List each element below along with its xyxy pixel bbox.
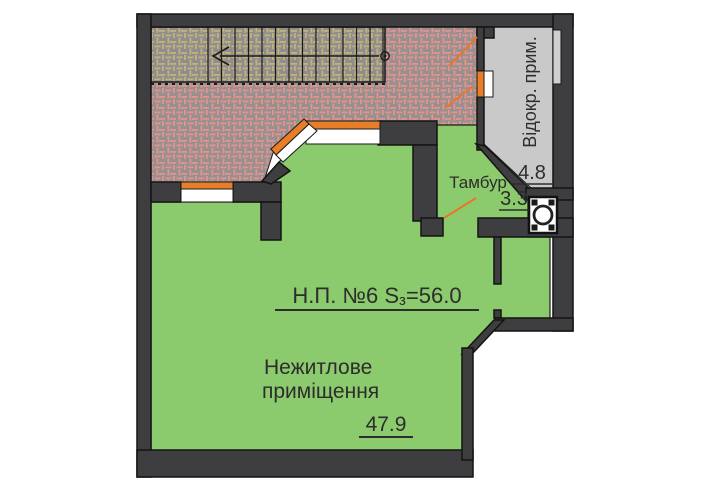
wall-segment bbox=[137, 450, 473, 477]
main-room-area: 47.9 bbox=[366, 413, 407, 436]
wall-segment bbox=[421, 218, 443, 236]
wall-segment bbox=[494, 237, 501, 284]
wall-segment bbox=[261, 202, 281, 240]
wall-segment bbox=[477, 97, 484, 150]
stairs-floor bbox=[151, 27, 385, 82]
wall-niche bbox=[553, 30, 561, 84]
wall-segment bbox=[462, 348, 473, 460]
wall-segment bbox=[495, 318, 573, 331]
wall-segment bbox=[378, 121, 437, 145]
window-bay-horizontal bbox=[306, 121, 380, 144]
separate-room-label: Відокр. прим. bbox=[520, 36, 540, 148]
separate-room-area: 4.8 bbox=[518, 162, 546, 184]
floor-plan-page: Відокр. прим. 4.8 Тамбур 3.3 Н.П. №6 Sз=… bbox=[0, 0, 708, 500]
window-separate-room bbox=[477, 71, 493, 97]
unit-title: Н.П. №6 Sз=56.0 bbox=[292, 283, 461, 309]
wall-segment bbox=[233, 182, 281, 202]
ventilation-shaft-symbol bbox=[529, 197, 557, 233]
main-room-name-line2: приміщення bbox=[262, 380, 379, 403]
vestibule-area: 3.3 bbox=[500, 188, 528, 210]
staircase bbox=[151, 27, 389, 84]
wall-segment bbox=[494, 310, 501, 318]
wall-segment bbox=[151, 182, 181, 202]
vestibule-label: Тамбур bbox=[449, 173, 507, 192]
window-left bbox=[181, 182, 233, 202]
wall-segment bbox=[137, 14, 151, 477]
floor-plan-canvas: Відокр. прим. 4.8 Тамбур 3.3 Н.П. №6 Sз=… bbox=[0, 0, 708, 500]
wall-segment bbox=[137, 14, 573, 27]
wall-segment bbox=[478, 218, 573, 237]
wall-segment bbox=[413, 145, 437, 221]
wall-segment bbox=[477, 27, 484, 71]
main-room-name-line1: Нежитлове bbox=[264, 356, 372, 379]
